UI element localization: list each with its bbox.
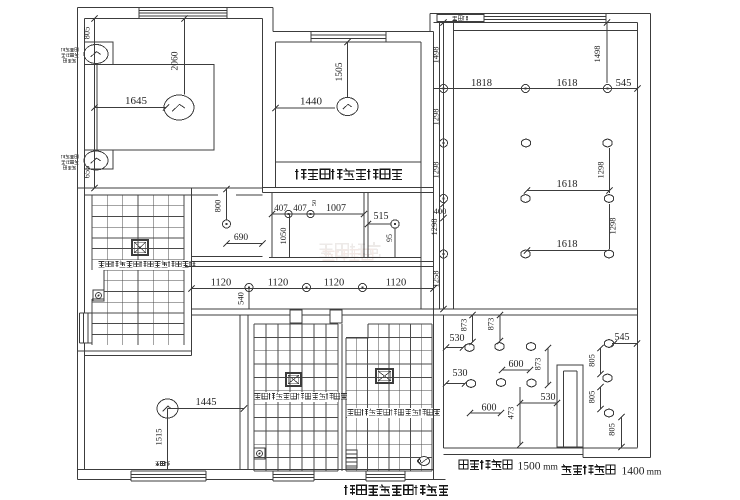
svg-text:1400: 1400 [622,466,645,478]
svg-text:1618: 1618 [557,78,578,89]
svg-text:1120: 1120 [324,278,345,289]
svg-text:1258: 1258 [431,271,441,288]
svg-text:600: 600 [482,403,497,414]
svg-text:407: 407 [293,203,307,213]
svg-text:873: 873 [533,358,543,371]
svg-text:690: 690 [234,233,249,243]
svg-text:1298: 1298 [431,109,441,126]
svg-text:873: 873 [459,319,469,332]
svg-text:1298: 1298 [596,162,606,179]
svg-text:600: 600 [509,359,524,370]
svg-text:545: 545 [616,78,632,89]
svg-text:1120: 1120 [386,278,407,289]
svg-text:1298: 1298 [429,219,439,236]
svg-text:407: 407 [274,203,288,213]
svg-text:530: 530 [541,392,556,403]
svg-text:1515: 1515 [154,429,164,446]
svg-text:1120: 1120 [268,278,289,289]
svg-text:655: 655 [82,166,92,179]
svg-text:mm: mm [543,463,558,473]
svg-text:515: 515 [374,211,389,222]
svg-text:1440: 1440 [300,96,323,108]
svg-text:2060: 2060 [171,51,181,70]
svg-text:95: 95 [385,234,394,242]
svg-text:530: 530 [450,333,465,344]
svg-text:805: 805 [607,423,617,436]
svg-text:1498: 1498 [431,47,441,64]
svg-text:800: 800 [213,200,223,213]
svg-text:1500: 1500 [518,461,541,473]
svg-text:1298: 1298 [608,218,618,235]
svg-text:1120: 1120 [211,278,232,289]
svg-text:1618: 1618 [557,179,578,190]
svg-text:540: 540 [236,292,246,305]
svg-text:805: 805 [587,391,597,404]
svg-text:473: 473 [506,407,516,420]
svg-text:400: 400 [434,206,447,216]
svg-text:50: 50 [311,200,318,207]
svg-text:1445: 1445 [196,397,217,408]
svg-text:1618: 1618 [557,239,578,250]
svg-text:mm: mm [647,468,662,478]
svg-text:530: 530 [453,368,468,379]
svg-text:805: 805 [82,27,92,40]
svg-text:1818: 1818 [471,78,492,89]
svg-text:1298: 1298 [431,162,441,179]
svg-text:1505: 1505 [335,62,345,81]
svg-text:873: 873 [486,318,496,331]
svg-text:805: 805 [587,354,597,367]
svg-text:1007: 1007 [326,203,346,214]
svg-text:1498: 1498 [592,46,602,63]
svg-text:1645: 1645 [125,95,148,107]
svg-text:1050: 1050 [278,228,288,245]
